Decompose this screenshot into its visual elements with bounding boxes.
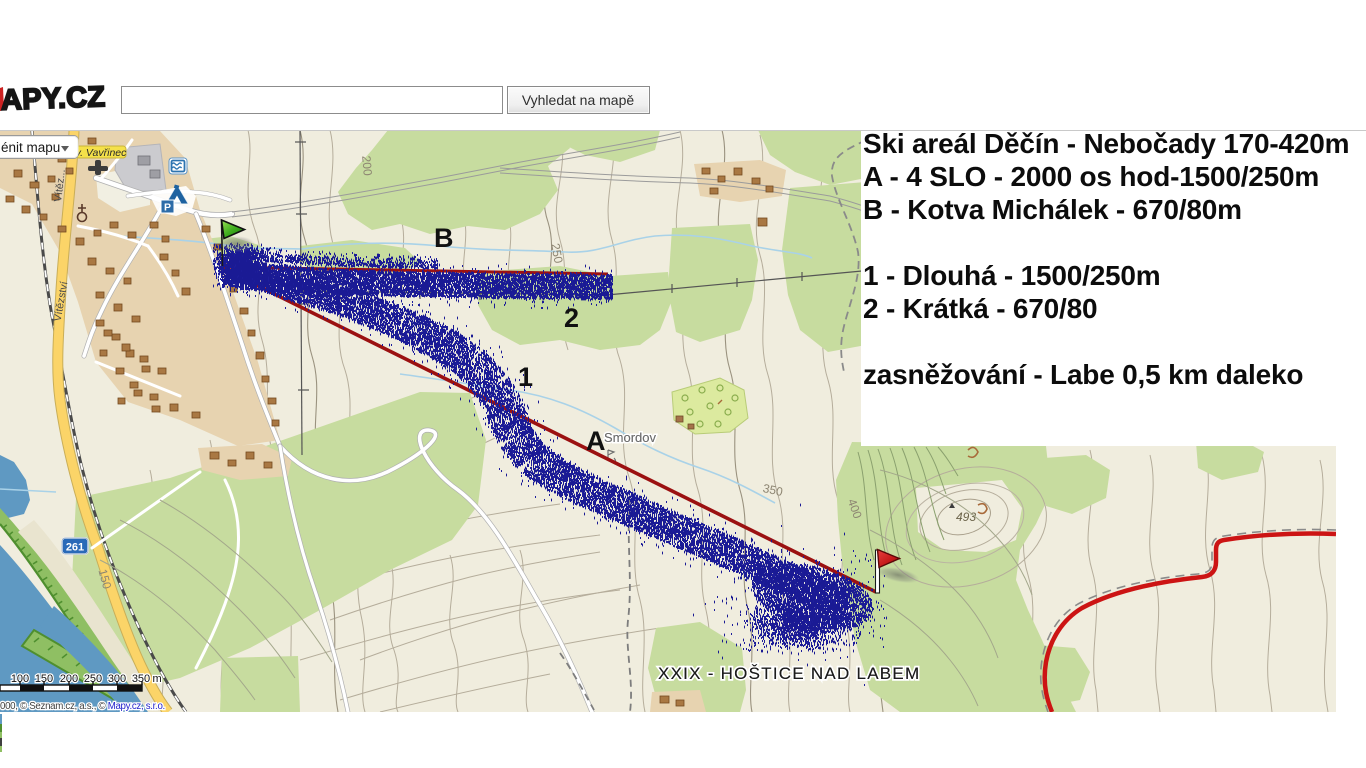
svg-text:493: 493: [956, 510, 976, 524]
svg-text:Ski areál Děčín - Nebočady 170: Ski areál Děčín - Nebočady 170-420m: [863, 128, 1349, 159]
svg-text:Vyhledat na mapě: Vyhledat na mapě: [522, 92, 635, 108]
svg-text:1 - Dlouhá - 1500/250m: 1 - Dlouhá - 1500/250m: [863, 260, 1161, 291]
svg-text:A: A: [586, 426, 606, 456]
svg-text:200: 200: [359, 155, 375, 176]
svg-text:A - 4 SLO - 2000 os hod-1500/2: A - 4 SLO - 2000 os hod-1500/250m: [863, 161, 1319, 192]
svg-text:APY.CZ: APY.CZ: [0, 81, 105, 117]
svg-text:2 - Krátká - 670/80: 2 - Krátká - 670/80: [863, 293, 1097, 324]
svg-text:000, © Seznam.cz, a.s., © Mapy: 000, © Seznam.cz, a.s., © Mapy.cz, s.r.o…: [0, 701, 165, 712]
svg-text:261: 261: [66, 542, 84, 554]
svg-text:B: B: [434, 223, 454, 253]
svg-text:v. Vavřinec: v. Vavřinec: [76, 147, 128, 159]
svg-text:350: 350: [132, 673, 150, 685]
svg-text:2: 2: [564, 303, 579, 333]
svg-text:m: m: [153, 673, 162, 685]
svg-text:P: P: [164, 202, 171, 214]
svg-text:B - Kotva Michálek - 670/80m: B - Kotva Michálek - 670/80m: [863, 194, 1242, 225]
svg-text:énit mapu: énit mapu: [1, 140, 60, 155]
svg-text:1: 1: [518, 362, 533, 392]
svg-text:Smordov: Smordov: [604, 430, 657, 445]
svg-text:zasněžování - Labe 0,5 km dale: zasněžování - Labe 0,5 km daleko: [863, 359, 1303, 390]
svg-text:XXIX - HOŠTICE NAD LABEM: XXIX - HOŠTICE NAD LABEM: [658, 664, 920, 683]
